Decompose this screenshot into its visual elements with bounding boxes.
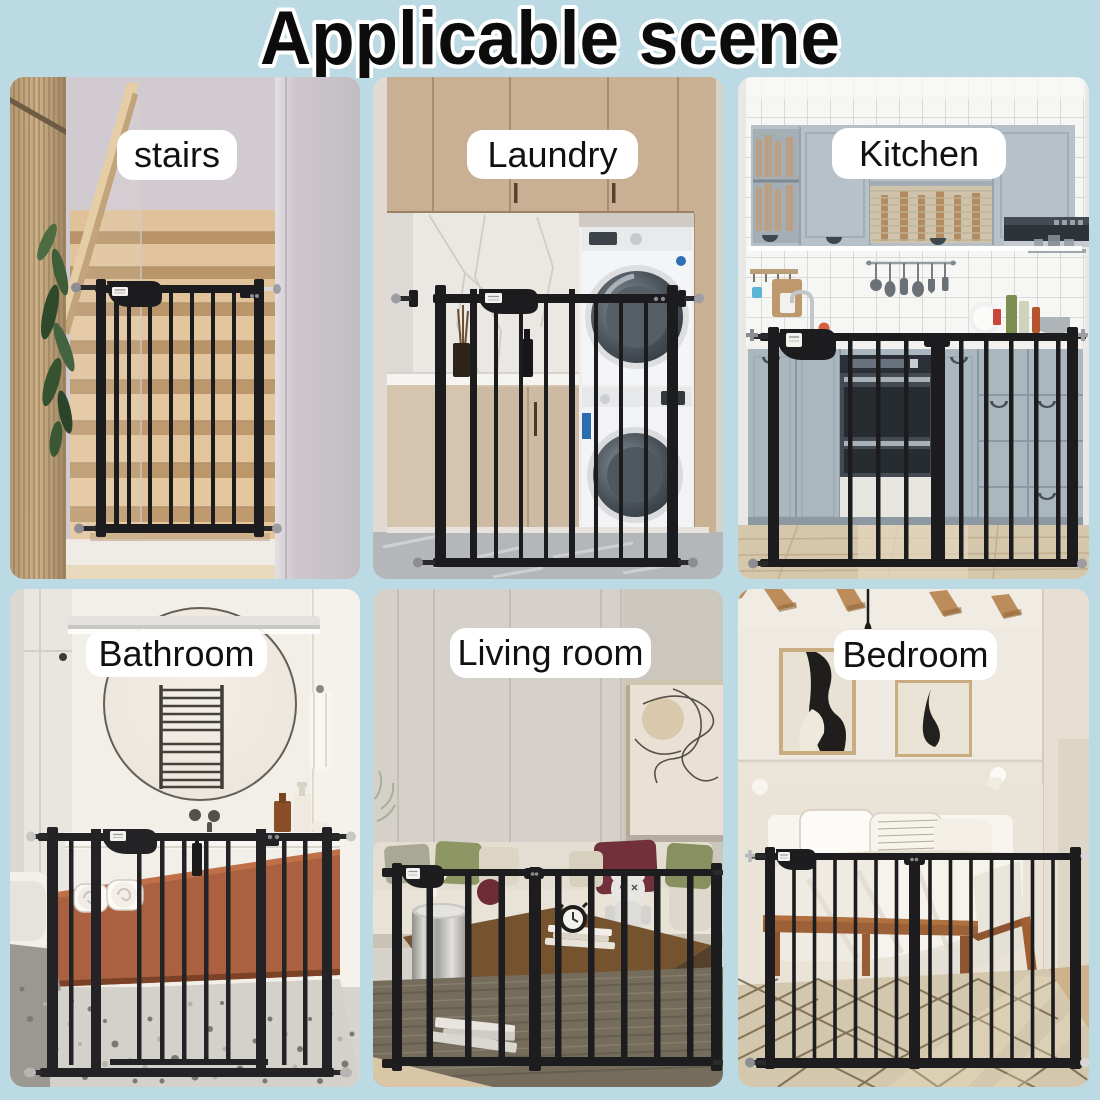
svg-text:Applicable scene: Applicable scene bbox=[260, 0, 840, 78]
